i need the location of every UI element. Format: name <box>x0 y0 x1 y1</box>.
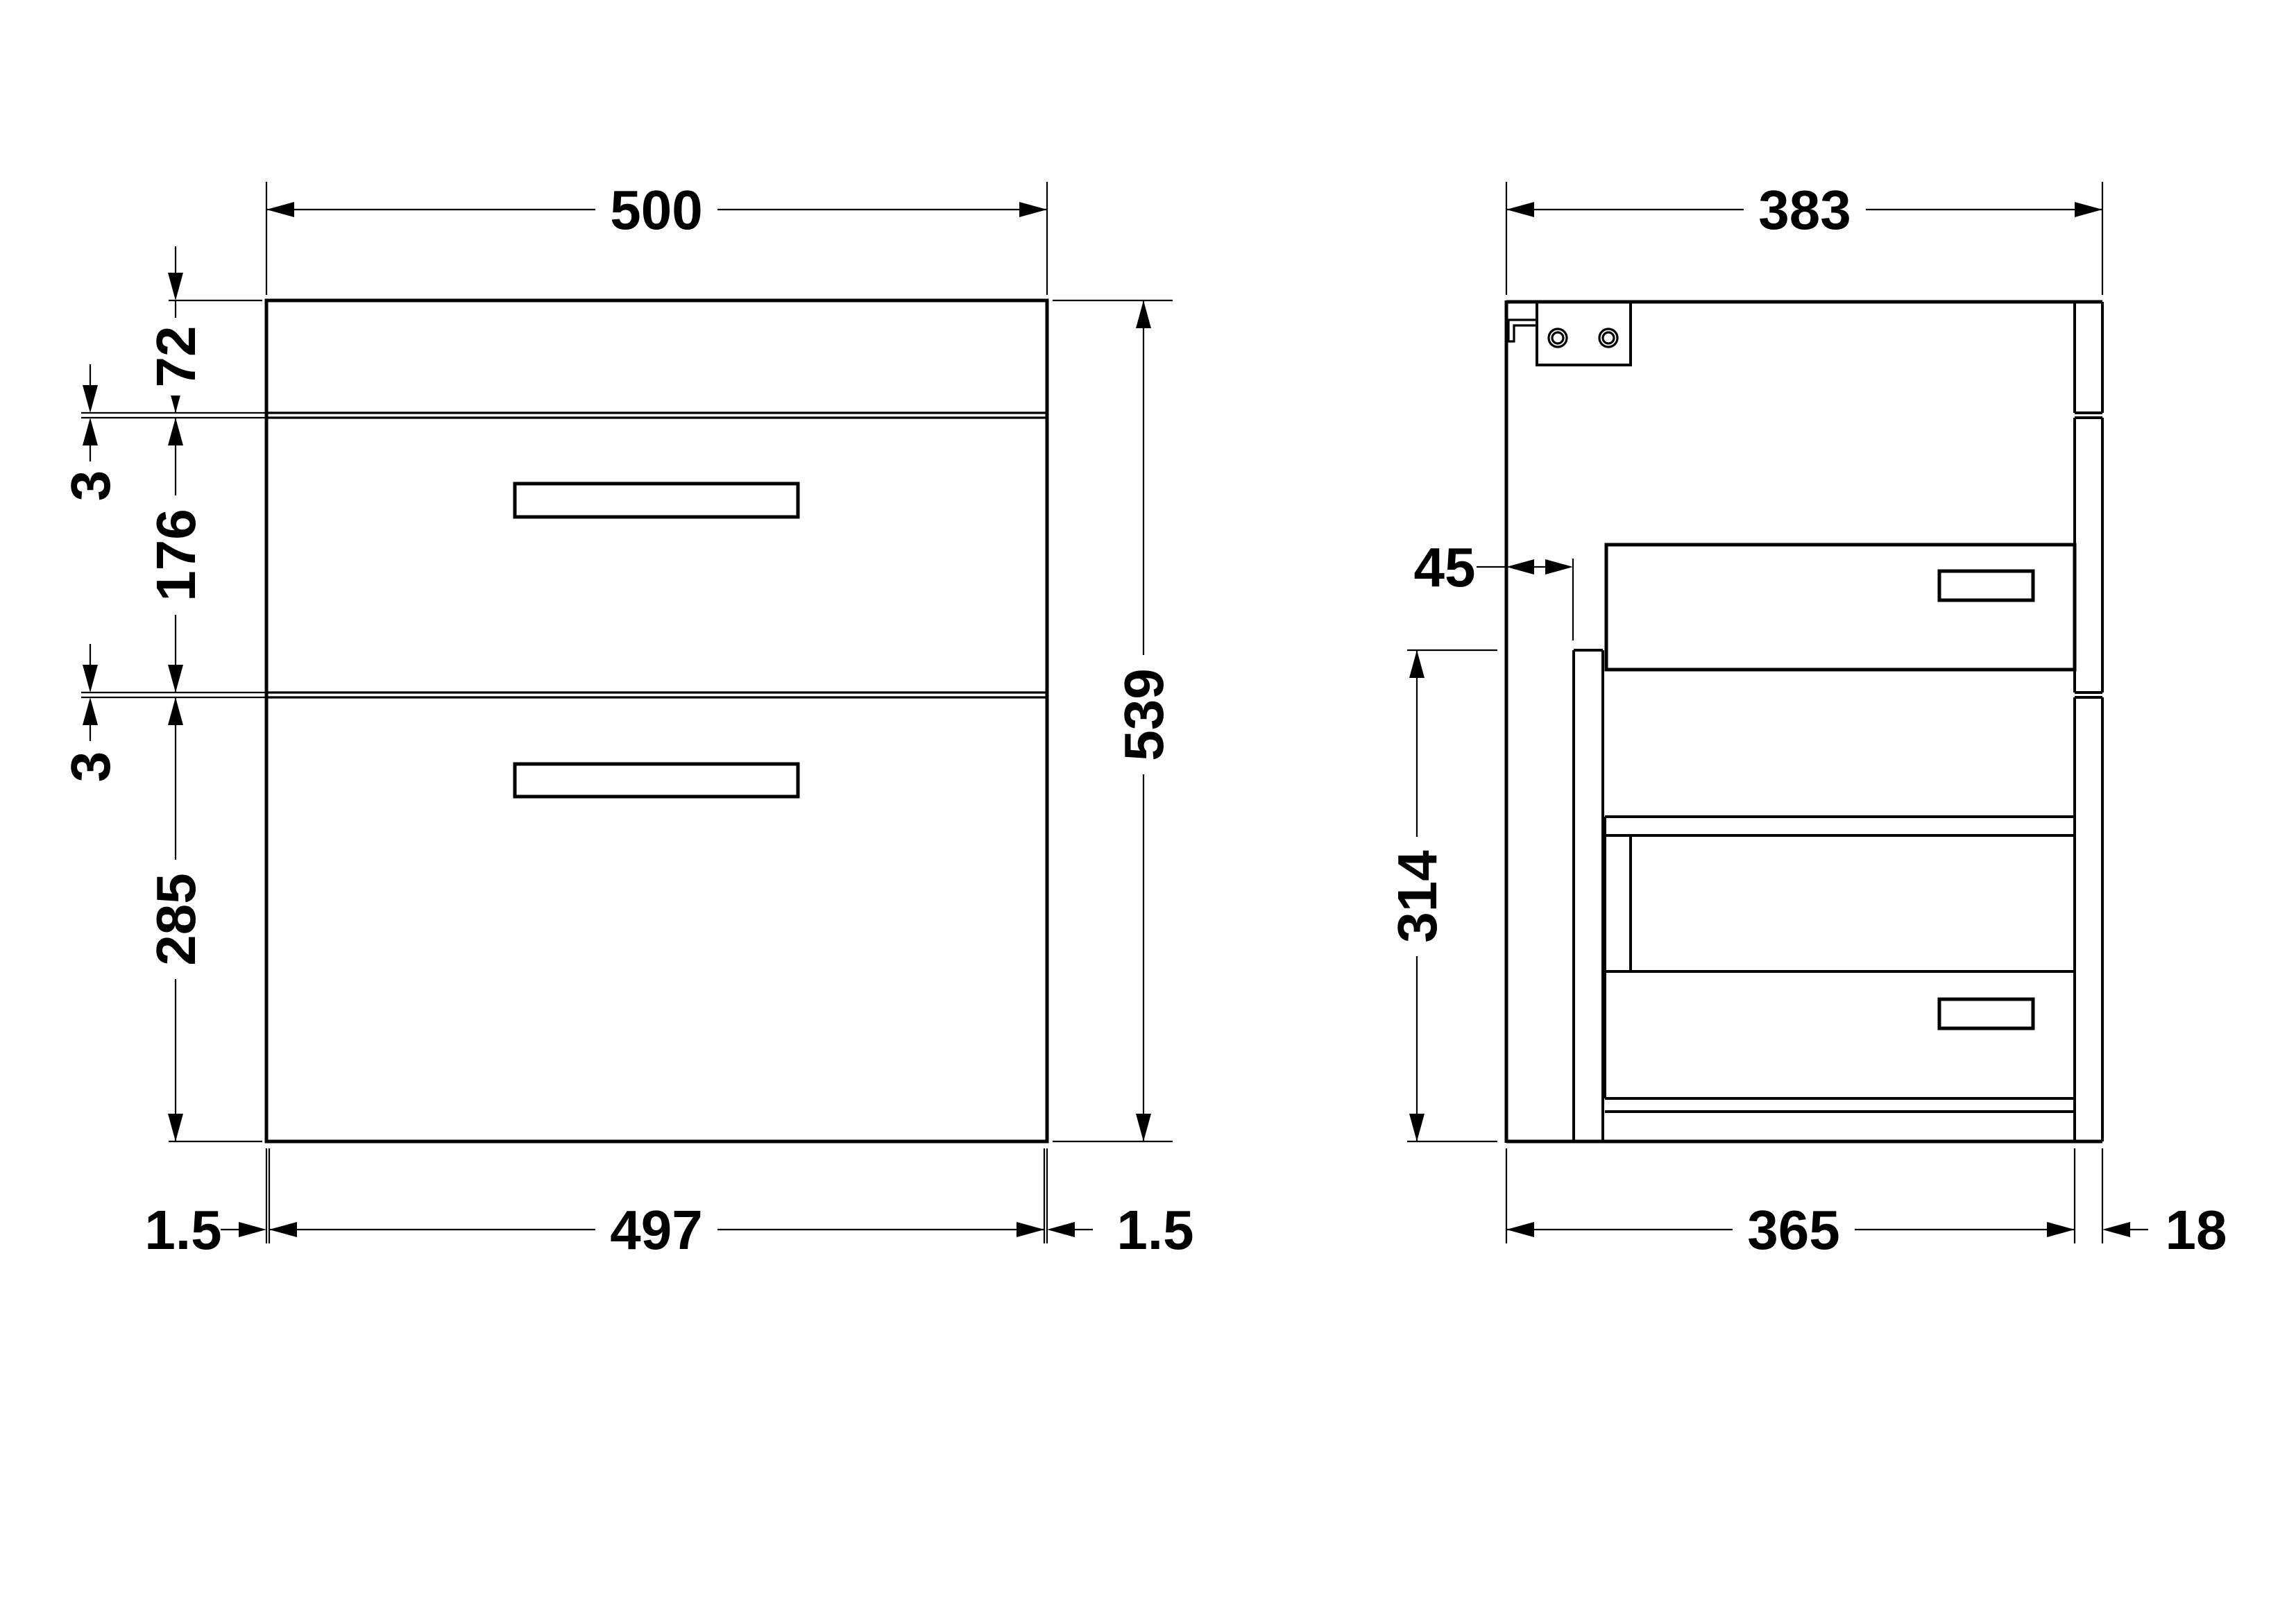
dim-label-497: 497 <box>610 1199 702 1261</box>
dim-side-upstand-height: 314 <box>1384 650 1497 1141</box>
dim-label-314: 314 <box>1386 850 1448 943</box>
dim-front-height: 539 <box>1053 300 1176 1141</box>
dim-label-500: 500 <box>610 179 702 241</box>
side-dimensions: 383 45 314 <box>1384 177 2227 1263</box>
rear-upstand <box>1574 650 1603 1141</box>
dim-label-1.5-right: 1.5 <box>1116 1199 1193 1261</box>
drawing-canvas: 500 72 176 285 <box>0 0 2296 1623</box>
dim-label-365: 365 <box>1747 1199 1839 1261</box>
bracket-screw-hole-inner-icon <box>1603 332 1614 343</box>
drawer1-handle <box>515 484 798 517</box>
bracket-hook <box>1508 320 1537 341</box>
front-view <box>266 300 1047 1141</box>
technical-drawing-page: 500 72 176 285 <box>0 0 2296 1623</box>
front-cabinet-outline <box>266 300 1047 1141</box>
front-dimensions: 500 72 176 285 <box>60 177 1194 1263</box>
drawer2-handle <box>515 764 798 797</box>
arrow-right-icon <box>1019 202 1047 217</box>
wall-bracket <box>1508 302 1631 365</box>
dim-label-383: 383 <box>1758 179 1851 241</box>
dim-front-top-width: 500 <box>266 177 1047 295</box>
dim-label-18: 18 <box>2166 1199 2227 1261</box>
dim-side-bottom: 365 18 <box>1506 1148 2227 1263</box>
dim-front-left-chain: 72 176 285 3 3 <box>60 246 266 1141</box>
dim-label-539: 539 <box>1113 668 1175 760</box>
top-drawer-box <box>1606 545 2075 670</box>
arrow-left-icon <box>266 202 294 217</box>
dim-label-45: 45 <box>1414 536 1476 598</box>
dim-front-gap-bottom: 3 <box>60 644 121 782</box>
top-drawer-runner <box>1939 571 2033 600</box>
dim-front-bottom: 1.5 497 1.5 <box>144 1148 1193 1263</box>
dim-side-top-depth: 383 <box>1506 177 2102 295</box>
dim-front-gap-top: 3 <box>60 364 121 501</box>
bracket-screw-hole-inner-icon <box>1552 332 1563 343</box>
dim-label-3-bottom: 3 <box>60 751 121 783</box>
dim-side-back-gap: 45 <box>1414 536 1573 640</box>
side-view <box>1506 300 2102 1143</box>
dim-label-176: 176 <box>145 509 207 601</box>
dim-label-72: 72 <box>145 326 207 388</box>
side-front-panels <box>2075 302 2102 1141</box>
dim-label-3-top: 3 <box>60 470 121 502</box>
dim-label-285: 285 <box>145 873 207 965</box>
top-drawer-side <box>1606 545 2075 670</box>
dim-label-1.5-left: 1.5 <box>144 1199 221 1261</box>
bottom-drawer-box <box>1605 817 2075 1112</box>
bottom-drawer-runner <box>1939 999 2033 1028</box>
